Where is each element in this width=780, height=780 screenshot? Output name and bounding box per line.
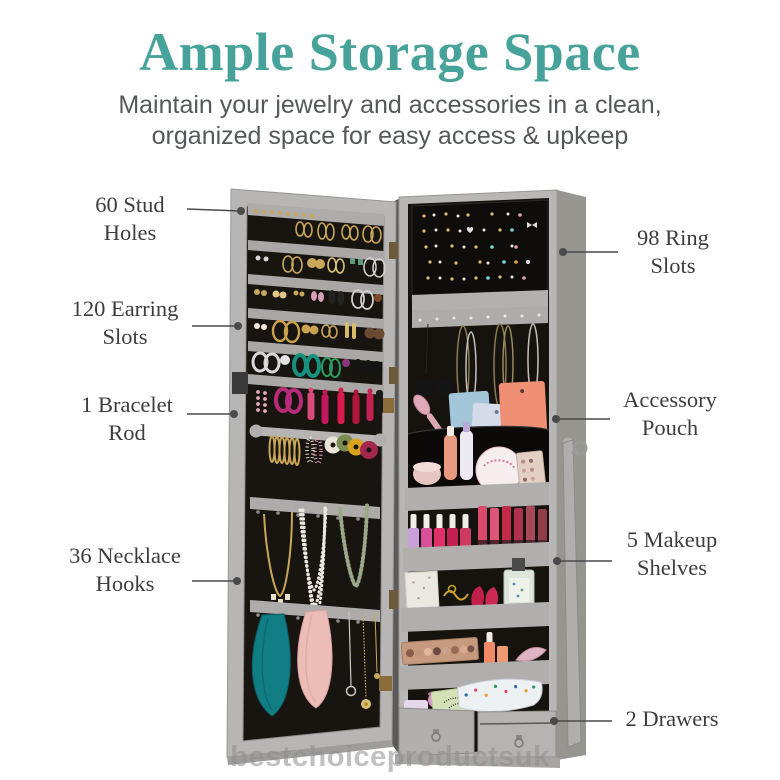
watermark: bestchoiceproductsuk bbox=[0, 741, 780, 774]
callout-ring-slots: 98 Ring Slots bbox=[593, 224, 753, 280]
cabinet-body bbox=[395, 190, 586, 768]
left-door-panel bbox=[227, 189, 396, 765]
brass-latch bbox=[379, 676, 392, 691]
door-lock bbox=[232, 372, 248, 394]
callout-drawers: 2 Drawers bbox=[592, 705, 752, 733]
callout-stud-holes: 60 Stud Holes bbox=[55, 191, 205, 247]
callout-makeup-shelves: 5 Makeup Shelves bbox=[592, 526, 752, 582]
callout-accessory-pouch: Accessory Pouch bbox=[590, 386, 750, 442]
ring-slot-panel bbox=[412, 200, 548, 300]
infographic-page: Ample Storage Space Maintain your jewelr… bbox=[0, 0, 780, 780]
callout-necklace-hooks: 36 Necklace Hooks bbox=[45, 542, 205, 598]
callout-bracelet-rod: 1 Bracelet Rod bbox=[47, 391, 207, 447]
callout-earring-slots: 120 Earring Slots bbox=[45, 295, 205, 351]
